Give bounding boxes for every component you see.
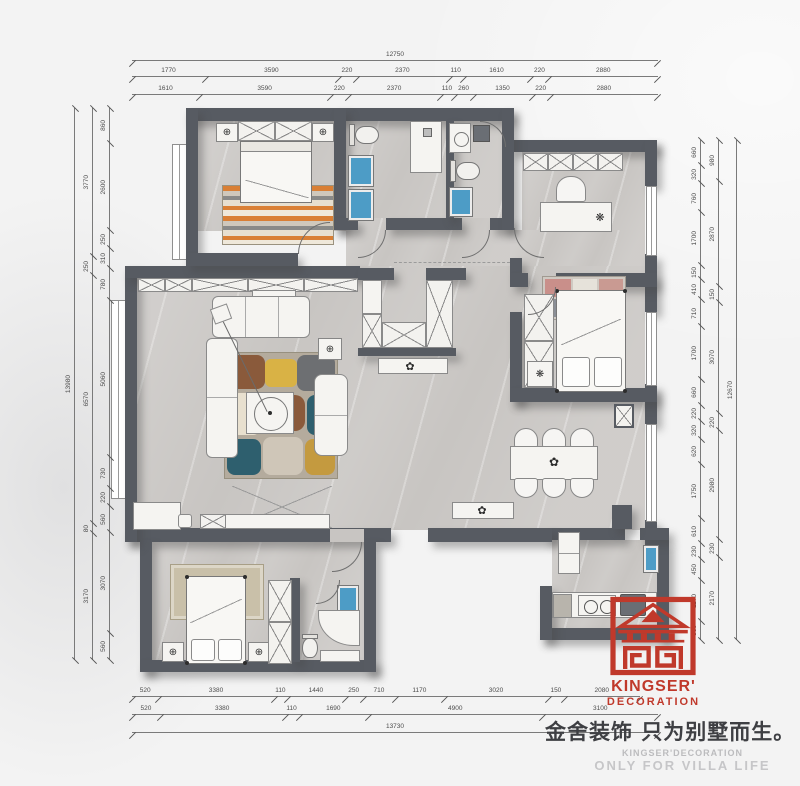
plant-icon-dining: ✿ xyxy=(546,454,562,470)
bed3-pillow xyxy=(218,639,242,661)
logo-wordmark: KINGSER' DECORATION xyxy=(596,678,711,708)
toilet-bath2 xyxy=(456,162,480,180)
wall-top-b xyxy=(510,140,657,152)
wall-bedroom3-right xyxy=(364,540,376,672)
wall-top-a xyxy=(186,108,512,121)
dim-bottom-row2: 5203380110169049003100 xyxy=(132,702,658,715)
master-headboard-cabinet xyxy=(238,121,275,141)
ucab-col-right-x xyxy=(426,280,453,348)
dim-left-inner: 860260025031078050607302205603070560 xyxy=(97,108,110,660)
bedroom3-bed xyxy=(186,576,246,664)
fan-icon-study: ❋ xyxy=(592,209,608,225)
dining-chair-top xyxy=(570,428,594,448)
window-study xyxy=(646,186,657,256)
wall-kitchen-left xyxy=(540,586,552,640)
dining-chair-top xyxy=(514,428,538,448)
dim-right-middle: 9802870150307022029802302170 xyxy=(706,140,719,640)
bedroom3-nightstand-left: ⊕ xyxy=(162,642,184,662)
master-bed-headboard xyxy=(241,142,311,152)
fridge-divider xyxy=(559,553,579,554)
bed2-corner-dot xyxy=(555,389,559,393)
pillar-kitchen xyxy=(612,505,632,529)
toilet-bath3-tank xyxy=(302,634,318,639)
dim-bottom-row1: 52033801101440250710117030201502080 xyxy=(132,684,640,697)
armchair xyxy=(314,374,348,456)
living-desk xyxy=(133,502,181,530)
study-bookshelf-3 xyxy=(573,153,598,171)
sink-bath2 xyxy=(450,188,472,216)
wall-master-right xyxy=(334,108,346,230)
tv-cabinet-2 xyxy=(165,278,192,292)
dim-right-outer: 12670 xyxy=(724,140,737,640)
shower-drain xyxy=(423,128,432,137)
bedroom2-corner-table: ❋ xyxy=(527,361,553,387)
bed2-foldline xyxy=(561,319,621,345)
vanity-bath3 xyxy=(320,650,360,662)
coffee-table xyxy=(246,392,294,434)
dining-chair-top xyxy=(542,428,566,448)
coffee-table-center xyxy=(268,411,272,415)
kitchen-sink xyxy=(644,546,658,572)
bedroom3-nightstand-right: ⊕ xyxy=(248,642,270,662)
study-bookshelf-4 xyxy=(598,153,623,171)
ucab-bottom-x xyxy=(382,322,426,348)
toilet-bath3 xyxy=(302,638,318,658)
sub-line1: KINGSER'DECORATION xyxy=(580,748,785,758)
dim-top-total: 12750 xyxy=(132,48,658,61)
study-bookshelf-1 xyxy=(523,153,548,171)
tv-cabinet-3 xyxy=(192,278,248,292)
bedroom3-door-gap xyxy=(330,529,364,542)
lamp-icon: ⊕ xyxy=(319,127,327,138)
logo-line1: KINGSER' xyxy=(596,678,711,696)
bed2-corner-dot xyxy=(623,389,627,393)
ucab-col-left-x xyxy=(362,314,382,348)
armchair-cushion-line xyxy=(315,415,347,416)
balcony-window-living xyxy=(111,300,126,499)
lamp-icon: ⊕ xyxy=(169,647,177,658)
ucab-col-left xyxy=(362,280,382,314)
living-side-table: ⊕ xyxy=(318,338,342,360)
sofa-cushion-line xyxy=(207,397,237,398)
ucab-base xyxy=(358,348,456,356)
bedroom3-wardrobe-2 xyxy=(268,622,292,664)
dim-right-inner: 6603207601700150410710170066022032062017… xyxy=(688,140,701,640)
bedroom3-wardrobe-1 xyxy=(268,580,292,622)
vanity-bath2 xyxy=(449,123,471,153)
bed3-corner-dot xyxy=(185,575,189,579)
fridge xyxy=(558,532,580,574)
wall-study-bottom-1 xyxy=(510,273,528,287)
toilet-bath2-tank xyxy=(450,160,456,182)
bed3-pillow xyxy=(191,639,215,661)
sub-brand: KINGSER'DECORATION ONLY FOR VILLA LIFE xyxy=(580,748,785,773)
wall-baths-bottom-2 xyxy=(386,218,462,230)
ceiling-dashed-line xyxy=(394,262,510,263)
ucab-cap-left xyxy=(358,268,394,280)
kitchen-corner-block xyxy=(553,594,572,618)
bed3-corner-dot xyxy=(243,661,247,665)
dim-left-outer: 13980 xyxy=(62,108,75,660)
sofa-cushion-line xyxy=(278,297,279,337)
plant-icon: ✿ xyxy=(402,359,418,373)
wall-kitchen-top xyxy=(545,528,625,540)
lamp-icon: ⊕ xyxy=(326,344,334,355)
wall-bath2-right xyxy=(502,108,514,230)
lamp-icon: ⊕ xyxy=(255,647,263,658)
bed2-pillow xyxy=(562,357,590,387)
sofa-cushion-line xyxy=(245,297,246,337)
tv-cabinet-1 xyxy=(138,278,165,292)
wall-living-left xyxy=(125,266,137,542)
dim-left-middle: 37702506570803170 xyxy=(80,108,93,660)
toilet-bath1-tank xyxy=(349,124,355,146)
wall-kitchen-jog xyxy=(640,528,669,540)
wall-left-upper xyxy=(186,108,198,266)
wall-living-top xyxy=(125,266,360,278)
logo-line2: DECORATION xyxy=(596,696,711,708)
shower-bath1 xyxy=(410,121,442,173)
ucab-cap-right xyxy=(426,268,466,280)
sink2-bath1 xyxy=(349,190,373,220)
sofa-left xyxy=(206,338,238,458)
rug-patch xyxy=(265,359,297,387)
kingser-logo xyxy=(608,596,698,676)
built-in-cabinet-x xyxy=(200,514,226,529)
dim-top-row2: 16103590220237011026013502202880 xyxy=(132,82,658,95)
master-bed-foldline xyxy=(245,180,309,198)
bed3-corner-dot xyxy=(185,661,189,665)
window-bedroom2 xyxy=(646,312,657,386)
slogan-chinese: 金舍装饰 只为别墅而生。 xyxy=(545,716,795,746)
wall-bottom-entry xyxy=(428,528,552,542)
dim-top-row1: 17703590220237011016102202880 xyxy=(132,64,658,77)
sub-line2: ONLY FOR VILLA LIFE xyxy=(580,758,785,773)
study-bookshelf-2 xyxy=(548,153,573,171)
floor-plan-canvas: ✿ ⊕ ⊕ ❋ xyxy=(0,0,800,786)
dining-column xyxy=(614,404,634,428)
window-dining xyxy=(646,424,657,522)
rug-patch xyxy=(263,437,303,475)
wall-bedroom3-left xyxy=(140,540,152,672)
master-bed xyxy=(240,141,312,203)
stove-burner xyxy=(584,600,598,614)
master-nightstand-right: ⊕ xyxy=(312,123,334,142)
bedroom2-bed xyxy=(556,290,626,392)
bed2-pillow xyxy=(594,357,622,387)
wall-master-bottom xyxy=(186,253,298,266)
plant-icon-sideboard: ✿ xyxy=(474,503,490,518)
sink1-bath1 xyxy=(349,156,373,186)
vanity-basin xyxy=(454,132,469,147)
lamp-icon: ⊕ xyxy=(223,127,231,138)
bed3-corner-dot xyxy=(243,575,247,579)
tv-cabinet-5 xyxy=(304,278,358,292)
fan-icon: ❋ xyxy=(536,369,544,380)
master-nightstand-left: ⊕ xyxy=(216,123,238,142)
wall-right-1 xyxy=(645,140,657,186)
study-chair xyxy=(556,176,586,202)
bay-window-master xyxy=(172,144,187,260)
toilet-bath1 xyxy=(355,126,379,144)
bed2-corner-dot xyxy=(623,289,627,293)
living-desk-stool xyxy=(178,514,192,528)
master-headboard-cabinet2 xyxy=(275,121,312,141)
bed3-foldline xyxy=(190,599,242,623)
